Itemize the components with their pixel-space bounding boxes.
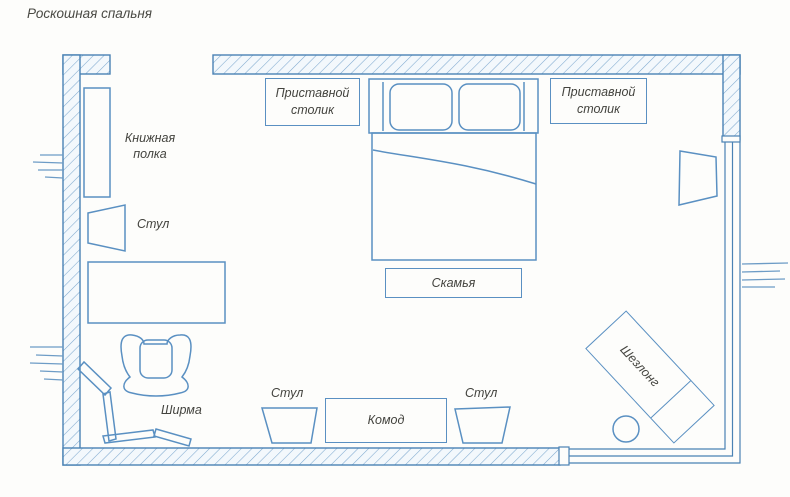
bookshelf-label: Книжная полка (112, 130, 188, 163)
screen-panel-4 (154, 429, 191, 446)
desk-shape (88, 262, 225, 323)
screen-panel-1 (78, 362, 111, 395)
chair-bottom-left-label: Стул (271, 385, 303, 401)
pillow-right-shape (459, 84, 520, 130)
pillow-left-shape (390, 84, 452, 130)
chair-bottom-left-shape (262, 408, 317, 443)
armchair-seat-shape (140, 340, 172, 378)
round-side-table-shape (613, 416, 639, 442)
chest-of-drawers: Комод (325, 398, 447, 443)
blanket-fold-line (373, 150, 536, 184)
screen-panel-2 (103, 392, 116, 441)
plan-title: Роскошная спальня (27, 6, 152, 21)
chair-right-wall-shape (679, 151, 717, 205)
side-table-right-label: Приставной столик (557, 84, 640, 118)
chest-label: Комод (368, 412, 405, 429)
window-jamb-right (722, 136, 740, 142)
wall-bottom (63, 448, 560, 465)
chair-bottom-right-label: Стул (465, 385, 497, 401)
chair-left-shape (88, 205, 125, 251)
window-jamb-bottom (559, 447, 569, 465)
bookshelf-shape (84, 88, 110, 197)
chair-bottom-right-shape (455, 407, 510, 443)
floor-plan: Роскошная спальня Книжная полка Стул При… (0, 0, 790, 497)
screen-label: Ширма (161, 402, 202, 418)
armchair-shape (121, 335, 191, 396)
bench: Скамья (385, 268, 522, 298)
wall-left (63, 55, 80, 465)
bench-label: Скамья (432, 275, 476, 292)
side-table-left-label: Приставной столик (272, 85, 353, 119)
side-table-left: Приставной столик (265, 78, 360, 126)
side-table-right: Приставной столик (550, 78, 647, 124)
bed-body-shape (372, 133, 536, 260)
bed-headboard-shape (369, 79, 538, 133)
chair-left-label: Стул (137, 216, 169, 232)
wall-right-top (723, 55, 740, 140)
wall-top-main (213, 55, 740, 74)
